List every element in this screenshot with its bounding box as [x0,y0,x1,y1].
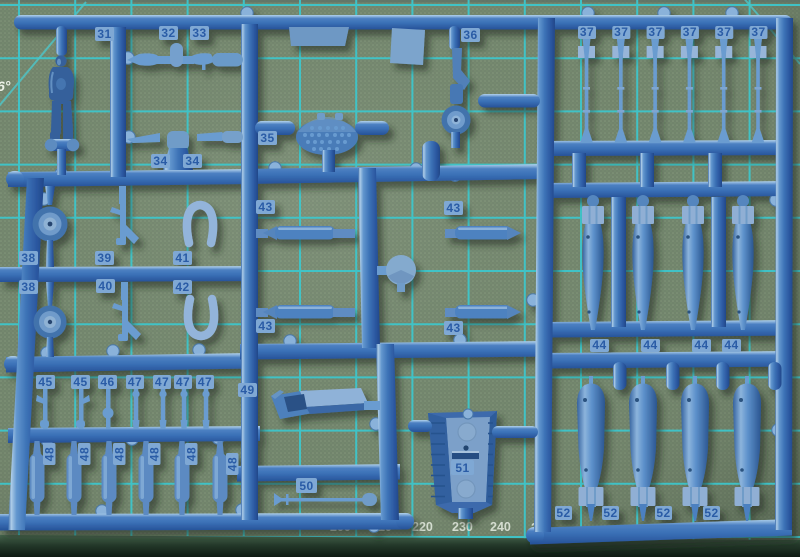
svg-text:48: 48 [147,447,161,461]
svg-text:37: 37 [614,25,628,39]
svg-text:6°: 6° [0,78,11,94]
svg-text:48: 48 [77,447,91,461]
svg-text:31: 31 [97,27,111,41]
svg-text:48: 48 [225,457,239,471]
svg-text:43: 43 [258,200,272,214]
svg-text:49: 49 [240,383,254,397]
svg-text:43: 43 [446,321,460,335]
svg-text:37: 37 [717,25,731,39]
svg-text:50: 50 [299,479,313,493]
svg-text:47: 47 [128,375,142,389]
svg-text:47: 47 [155,375,169,389]
svg-text:44: 44 [724,338,738,352]
svg-text:44: 44 [694,338,708,352]
svg-text:38: 38 [21,251,35,265]
svg-text:52: 52 [704,506,718,520]
svg-text:52: 52 [656,506,670,520]
svg-text:40: 40 [98,279,112,293]
svg-text:46: 46 [100,375,114,389]
svg-text:44: 44 [643,338,657,352]
svg-text:48: 48 [42,447,56,461]
svg-text:34: 34 [153,154,167,168]
svg-text:48: 48 [112,447,126,461]
svg-text:33: 33 [192,26,206,40]
svg-text:39: 39 [97,251,111,265]
svg-text:34: 34 [185,154,199,168]
svg-text:48: 48 [184,447,198,461]
svg-text:47: 47 [198,375,212,389]
svg-text:52: 52 [603,506,617,520]
svg-text:32: 32 [161,26,175,40]
svg-text:43: 43 [446,201,460,215]
svg-text:240: 240 [490,520,511,534]
svg-text:51: 51 [455,461,469,475]
svg-text:37: 37 [683,25,697,39]
svg-text:37: 37 [751,25,765,39]
svg-text:230: 230 [452,520,473,534]
svg-text:42: 42 [175,280,189,294]
svg-text:220: 220 [412,520,433,534]
svg-text:38: 38 [21,280,35,294]
svg-text:43: 43 [258,319,272,333]
svg-text:37: 37 [580,25,594,39]
svg-text:47: 47 [176,375,190,389]
svg-text:45: 45 [38,375,52,389]
svg-text:52: 52 [556,506,570,520]
svg-text:36: 36 [463,28,477,42]
svg-text:37: 37 [648,25,662,39]
svg-text:35: 35 [260,131,274,145]
svg-text:45: 45 [73,375,87,389]
svg-text:41: 41 [175,251,189,265]
svg-text:44: 44 [592,338,606,352]
